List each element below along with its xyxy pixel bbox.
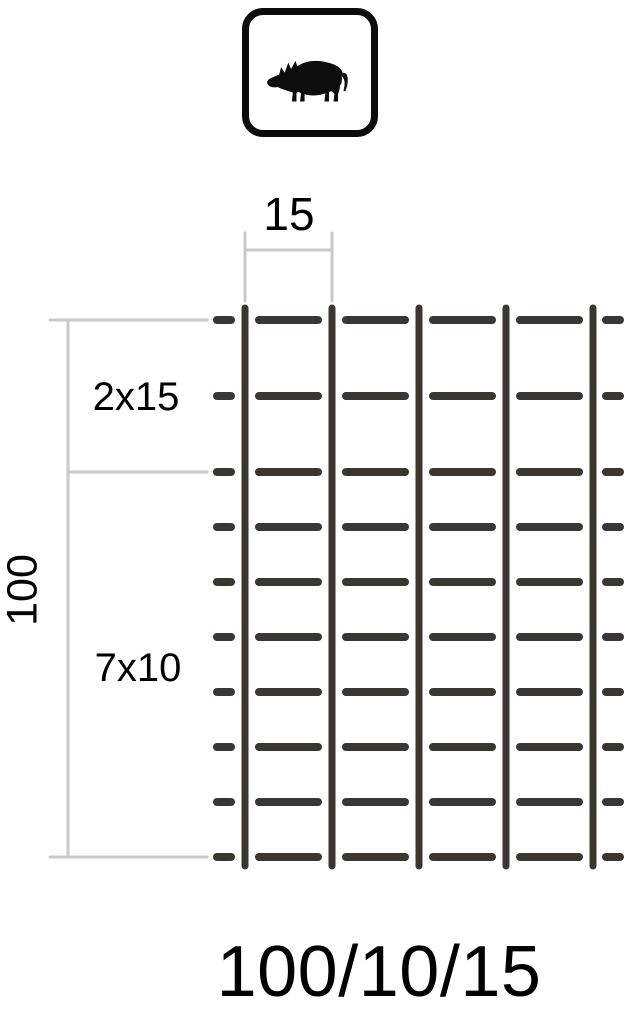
wild-boar-icon [263, 49, 357, 107]
boar-icon-box [242, 8, 378, 137]
upper-section-label: 2x15 [93, 377, 180, 417]
top-width-label: 15 [263, 191, 314, 237]
total-height-label: 100 [2, 554, 45, 626]
fence-mesh-diagram: 15 2x15 100 7x10 100/10/15 [0, 0, 640, 1024]
mesh-and-dimension-lines [0, 0, 640, 1024]
lower-section-label: 7x10 [95, 648, 182, 688]
product-code-label: 100/10/15 [217, 936, 542, 1008]
